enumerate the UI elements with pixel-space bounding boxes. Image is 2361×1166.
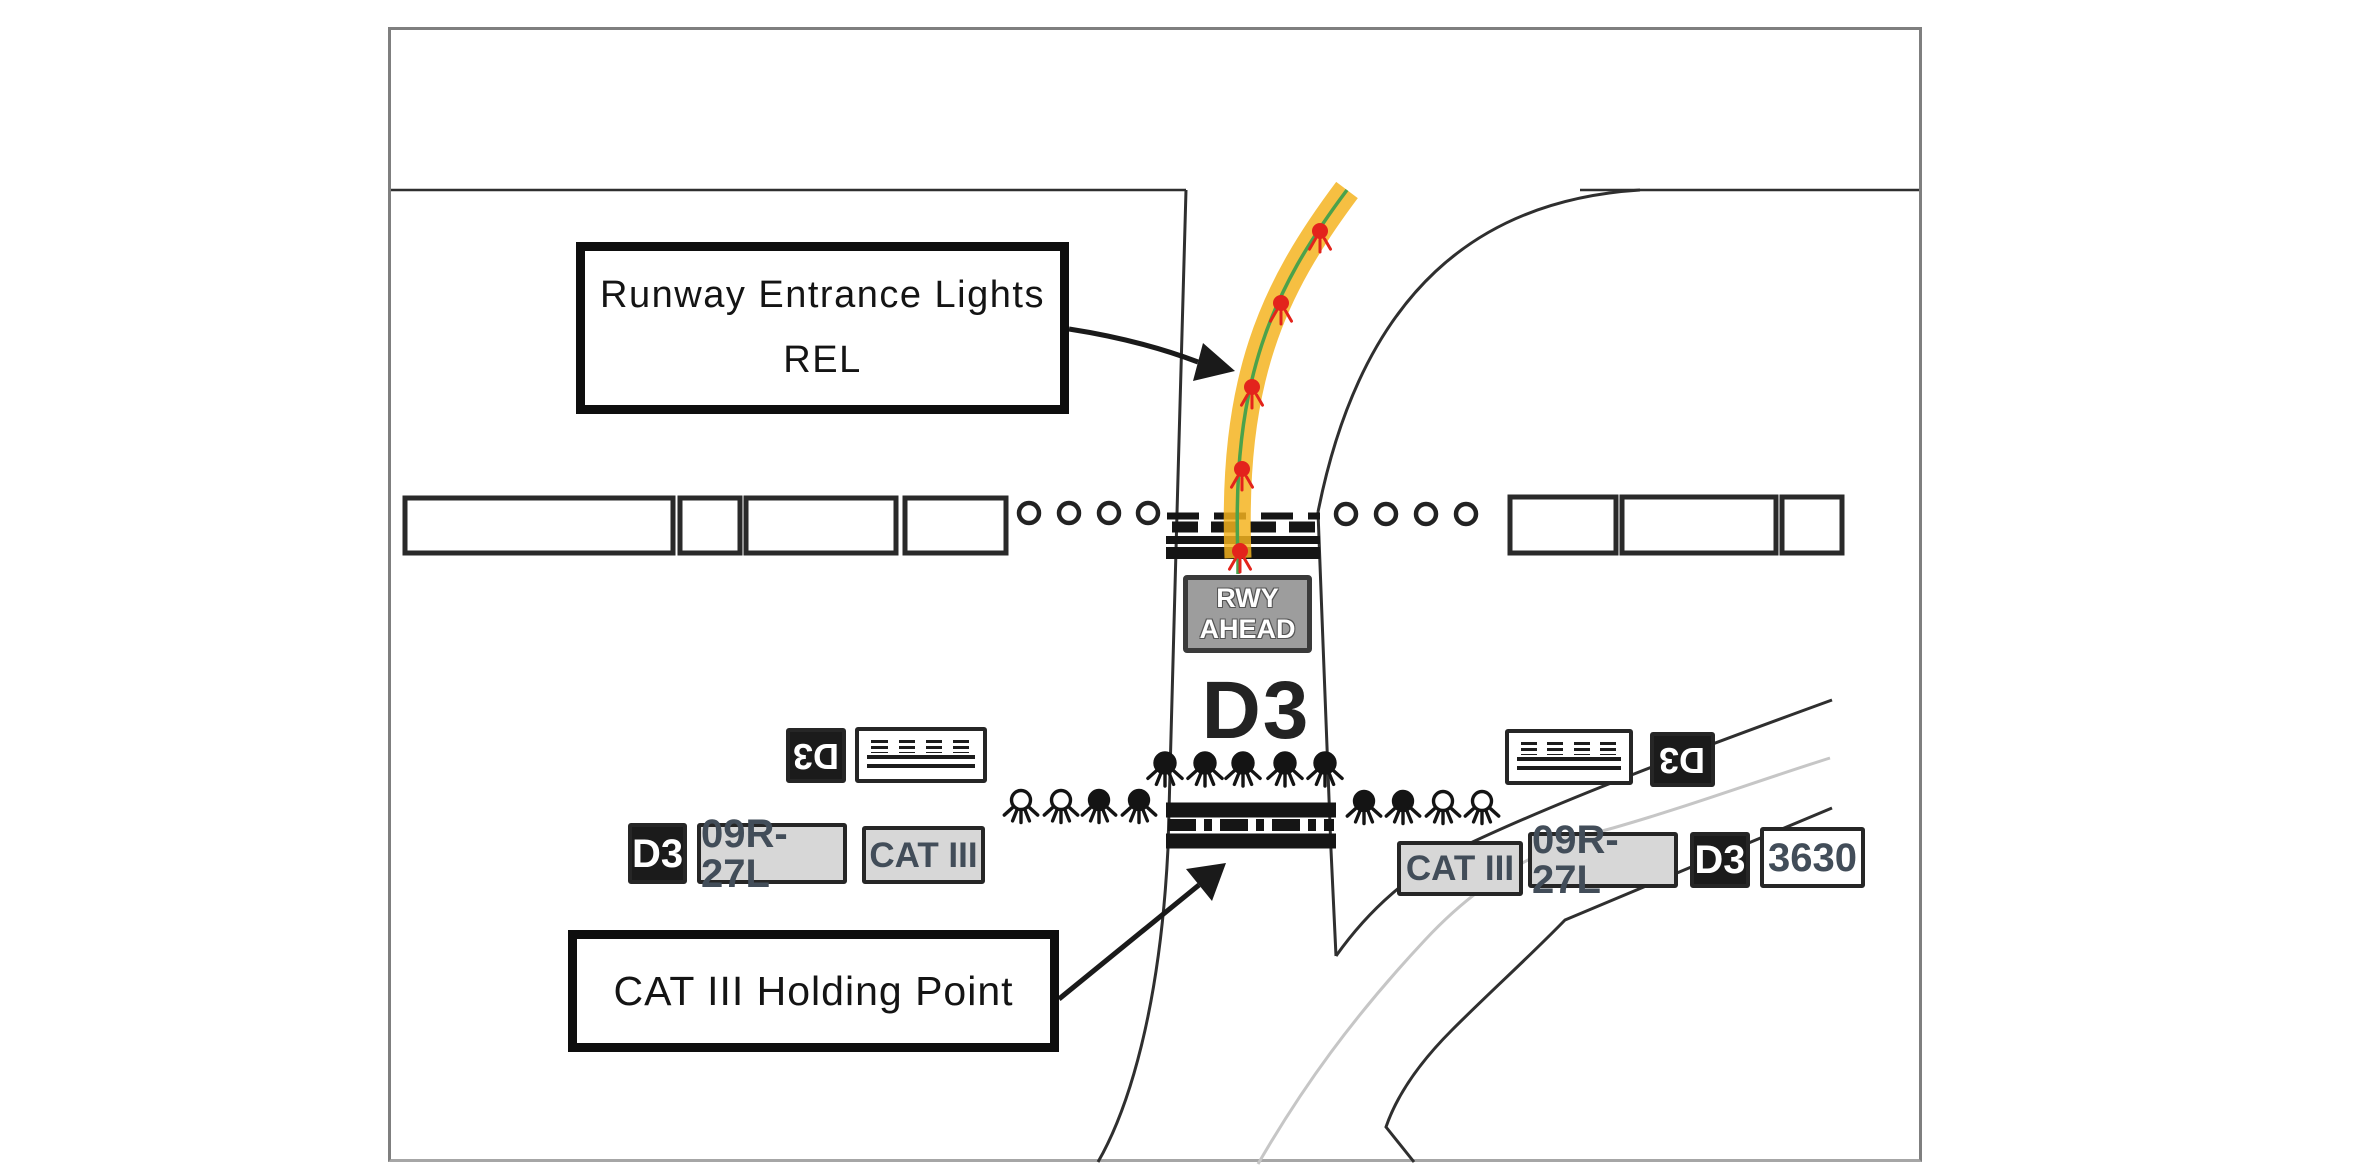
guard-light — [1122, 791, 1155, 823]
diagram-canvas — [0, 0, 2361, 1166]
edge-lights-right — [1336, 504, 1476, 524]
sign-runway-left: 09R-27L — [697, 823, 847, 884]
guard-light — [1044, 791, 1077, 823]
sign-d3-left: D3 — [628, 823, 687, 884]
rwy-ahead-line1: RWY — [1216, 583, 1279, 614]
edge-lights-left — [1019, 503, 1158, 523]
holding-line-bars — [405, 497, 1842, 553]
sign-stand-3630-text: 3630 — [1768, 838, 1857, 878]
runway-fillet-curve — [1318, 190, 1640, 512]
sign-pattern-right — [1505, 729, 1633, 785]
sign-d3-reversed-right-text: D3 — [1659, 742, 1705, 778]
holding-marking-lower — [1166, 810, 1336, 841]
edge-light-circle — [1099, 503, 1119, 523]
guard-light — [1347, 792, 1380, 824]
sign-cat3-right-text: CAT III — [1406, 851, 1514, 886]
cat3-arrow — [1059, 863, 1226, 999]
sign-d3-reversed-right: D3 — [1650, 732, 1715, 787]
sign-stand-3630: 3630 — [1760, 827, 1865, 888]
taxiway-designator-text: D3 — [1190, 664, 1322, 758]
sign-pattern-left — [855, 727, 987, 783]
guard-lights-right — [1347, 792, 1498, 824]
rel-callout-line1: Runway Entrance Lights — [600, 274, 1045, 317]
guard-light — [1386, 792, 1419, 824]
edge-light-circle — [1059, 503, 1079, 523]
sign-d3-right: D3 — [1690, 832, 1750, 888]
guard-light — [1082, 791, 1115, 823]
edge-light-circle — [1019, 503, 1039, 523]
diagram-stage: RWY AHEAD D3 D3 D3 D3 09R-27L CAT III CA… — [0, 0, 2361, 1166]
sign-d3-reversed-left: D3 — [786, 728, 846, 783]
edge-light-circle — [1416, 504, 1436, 524]
edge-light-circle — [1456, 504, 1476, 524]
sign-d3-right-text: D3 — [1694, 840, 1745, 880]
sign-runway-left-text: 09R-27L — [701, 814, 843, 894]
cat-marking-pattern-icon — [862, 734, 980, 776]
guard-light — [1465, 792, 1498, 824]
stopbar-light — [1148, 753, 1182, 786]
sign-runway-right: 09R-27L — [1528, 832, 1678, 888]
rel-callout-line2: REL — [783, 339, 861, 382]
guard-lights-left — [1004, 791, 1155, 823]
cat3-callout-box: CAT III Holding Point — [568, 930, 1059, 1052]
edge-light-circle — [1336, 504, 1356, 524]
rel-arrow — [1069, 329, 1235, 381]
cat-marking-pattern-icon — [1512, 736, 1626, 778]
cat3-callout-text: CAT III Holding Point — [613, 968, 1013, 1015]
rwy-ahead-line2: AHEAD — [1199, 614, 1295, 645]
sign-runway-right-text: 09R-27L — [1532, 820, 1674, 900]
sign-d3-left-text: D3 — [632, 834, 683, 874]
guard-light — [1004, 791, 1037, 823]
edge-light-circle — [1138, 503, 1158, 523]
rel-callout-box: Runway Entrance Lights REL — [576, 242, 1069, 414]
edge-light-circle — [1376, 504, 1396, 524]
sign-cat3-left-text: CAT III — [869, 838, 977, 873]
sign-cat3-left: CAT III — [862, 826, 985, 884]
guard-light — [1426, 792, 1459, 824]
rwy-ahead-sign: RWY AHEAD — [1183, 575, 1312, 653]
sign-cat3-right: CAT III — [1397, 841, 1523, 896]
sign-d3-reversed-left-text: D3 — [793, 738, 839, 774]
